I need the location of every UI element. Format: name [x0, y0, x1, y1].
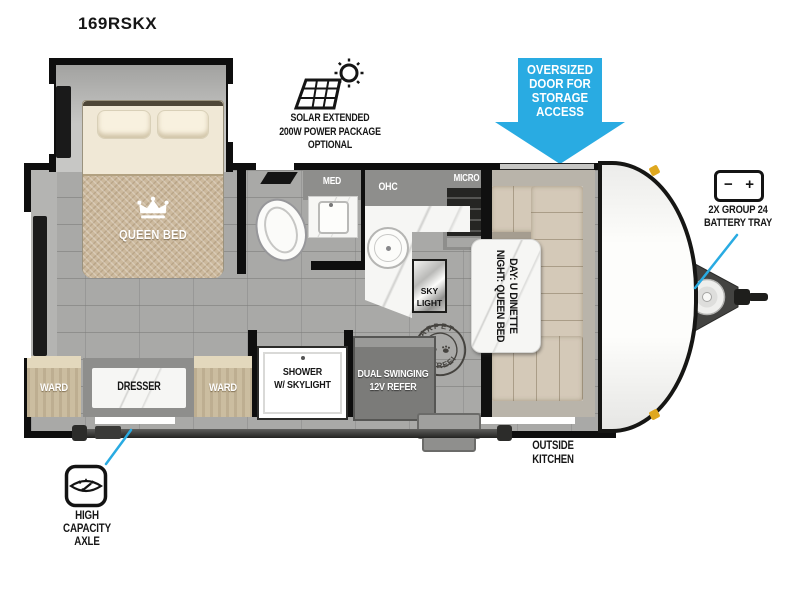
scale-icon	[64, 464, 108, 508]
wall-segment	[311, 261, 370, 270]
micro-label: MICRO	[448, 173, 486, 184]
ward-right-label: WARD	[198, 382, 247, 394]
hitch-coupler	[734, 289, 750, 305]
battery-tray-annotation: 2X GROUP 24 BATTERY TRAY	[694, 204, 782, 229]
kitchen-sink	[367, 227, 409, 269]
queen-bed: QUEEN BED	[82, 100, 224, 277]
window	[480, 417, 575, 424]
battery-icon: − +	[714, 170, 764, 202]
wardrobe-right: WARD	[194, 356, 252, 417]
skylight: SKY LIGHT	[412, 259, 447, 313]
faucet-dot	[329, 203, 333, 207]
window	[256, 163, 294, 170]
rear-window	[33, 216, 47, 356]
front-cap	[598, 161, 698, 433]
dinette-table-label: DAY: U DINETTE NIGHT: QUEEN BED	[472, 240, 540, 352]
ward-left-label: WARD	[31, 382, 77, 394]
paw-print-icon	[442, 345, 450, 353]
axle-bar	[78, 429, 512, 438]
slideout-window	[56, 86, 71, 158]
wardrobe-left: WARD	[27, 356, 81, 417]
page-title: 169RSKX	[78, 14, 198, 33]
pillow	[157, 110, 209, 139]
storage-access-door	[500, 163, 594, 170]
dresser-label: DRESSER	[101, 381, 176, 394]
axle-bracket	[95, 426, 121, 439]
solar-panel-sun-icon	[292, 58, 368, 114]
storage-access-arrow: OVERSIZED DOOR FOR STORAGE ACCESS	[495, 58, 625, 164]
shower-label: SHOWER W/ SKYLIGHT	[266, 366, 340, 391]
dresser-top: DRESSER	[92, 368, 186, 408]
dinette-table: DAY: U DINETTE NIGHT: QUEEN BED	[471, 239, 541, 353]
window	[95, 417, 175, 424]
med-cabinet-label: MED	[309, 176, 355, 188]
solar-package-annotation: SOLAR EXTENDED 200W POWER PACKAGE OPTION…	[279, 112, 381, 153]
floorplan-diagram: 169RSKX SOLAR EXTENDED 200W POWER PACKAG…	[0, 0, 800, 600]
outside-kitchen-label: OUTSIDE KITCHEN	[519, 439, 586, 466]
bed-blanket	[83, 174, 223, 278]
bath-sink-basin	[318, 201, 349, 234]
axle-end-cap	[497, 425, 512, 441]
axle-end-cap	[72, 425, 87, 441]
ohc-label: OHC	[370, 181, 405, 193]
window	[228, 84, 233, 142]
pillow	[97, 110, 151, 139]
queen-bed-label: QUEEN BED	[94, 228, 213, 243]
window	[24, 212, 31, 358]
refer-label: DUAL SWINGING 12V REFER	[346, 368, 440, 393]
shower: SHOWER W/ SKYLIGHT	[257, 346, 348, 420]
shower-head-dot	[301, 356, 305, 360]
window	[49, 84, 54, 154]
crown-icon	[136, 196, 170, 222]
axle-annotation: HIGH CAPACITY AXLE	[50, 510, 123, 549]
wall-segment	[237, 170, 246, 274]
